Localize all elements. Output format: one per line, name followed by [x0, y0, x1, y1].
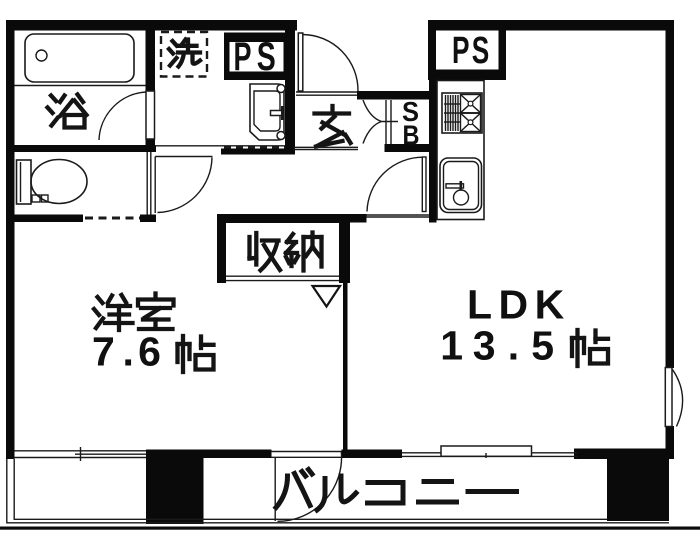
svg-text:6: 6 — [138, 329, 161, 375]
svg-text:3: 3 — [473, 323, 496, 369]
svg-text:LDK: LDK — [467, 282, 571, 328]
svg-text:P: P — [234, 35, 252, 79]
svg-text:.: . — [122, 329, 133, 375]
svg-text:B: B — [403, 120, 420, 151]
svg-text:1: 1 — [440, 323, 463, 369]
svg-text:.: . — [508, 323, 519, 369]
svg-text:7: 7 — [92, 329, 115, 375]
svg-text:P: P — [452, 30, 470, 72]
svg-text:5: 5 — [531, 323, 554, 369]
svg-text:S: S — [472, 30, 490, 72]
svg-text:S: S — [257, 35, 276, 79]
